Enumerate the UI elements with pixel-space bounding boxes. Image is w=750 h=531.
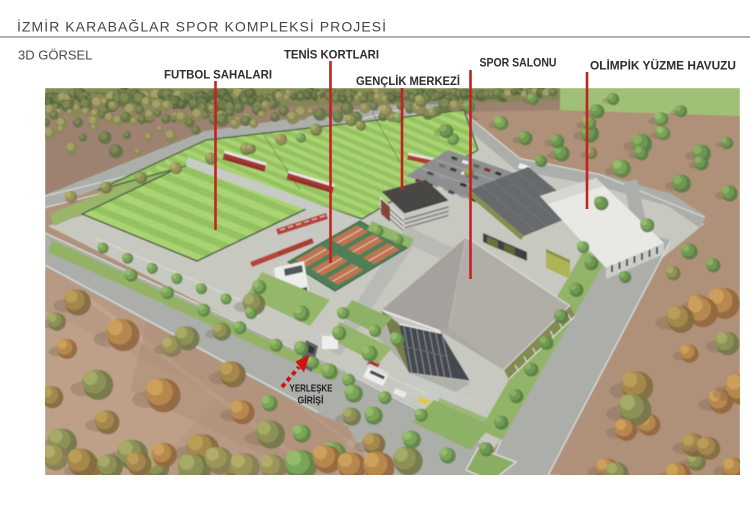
svg-text:YERLEŞKE: YERLEŞKE xyxy=(290,383,333,395)
svg-text:OLİMPİK YÜZME HAVUZU: OLİMPİK YÜZME HAVUZU xyxy=(590,60,736,73)
svg-text:GİRİŞİ: GİRİŞİ xyxy=(298,394,324,407)
svg-text:İZMİR KARABAĞLAR SPOR KOMPLEKS: İZMİR KARABAĞLAR SPOR KOMPLEKSİ PROJESİ xyxy=(17,18,386,35)
svg-text:3D GÖRSEL: 3D GÖRSEL xyxy=(18,48,92,63)
svg-text:GENÇLİK MERKEZİ: GENÇLİK MERKEZİ xyxy=(356,75,460,88)
svg-text:FUTBOL SAHALARI: FUTBOL SAHALARI xyxy=(164,70,272,82)
svg-text:TENİS KORTLARI: TENİS KORTLARI xyxy=(284,49,379,62)
svg-text:SPOR SALONU: SPOR SALONU xyxy=(480,58,557,70)
